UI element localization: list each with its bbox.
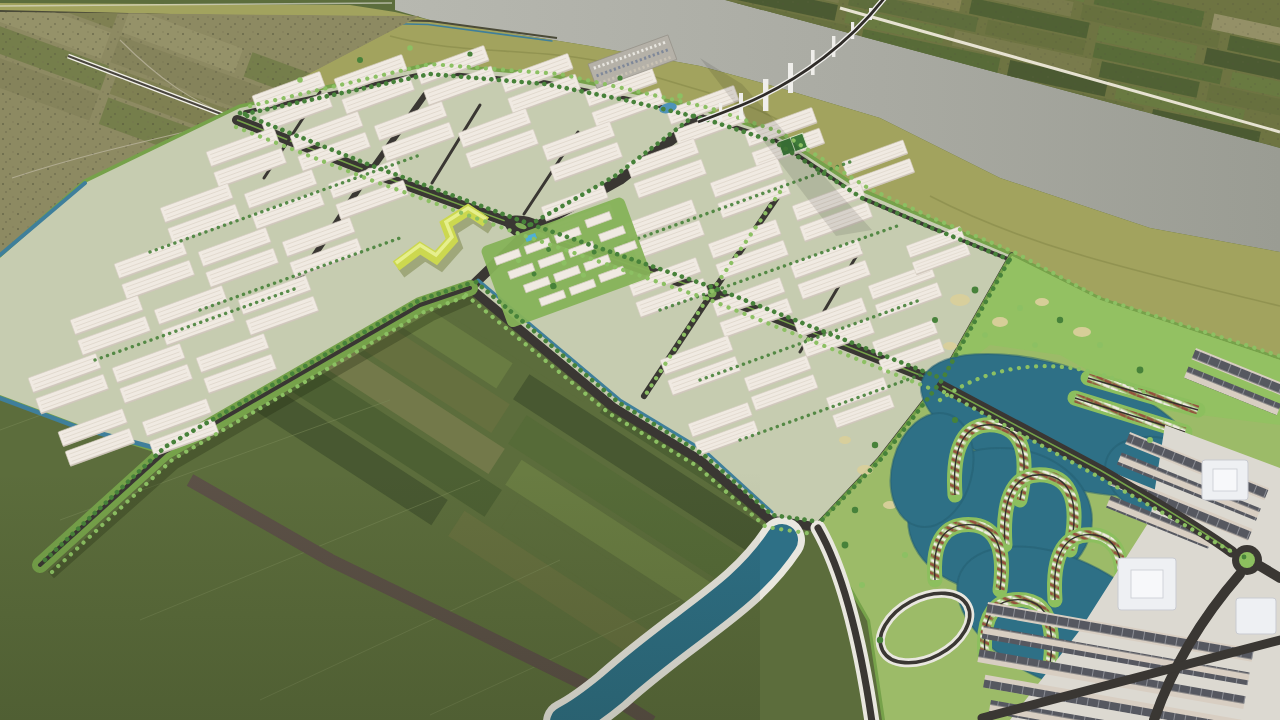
landmark-building	[1236, 598, 1276, 634]
scene-canvas	[0, 0, 1280, 720]
roundabout-tree	[1249, 560, 1253, 564]
landmark-top	[1213, 469, 1237, 491]
landmark-top	[1131, 570, 1163, 598]
roundabout-green	[1239, 552, 1255, 568]
roundabout-tree	[1242, 555, 1247, 560]
masterplan-render	[0, 0, 1280, 720]
bottom-shading	[0, 470, 760, 720]
